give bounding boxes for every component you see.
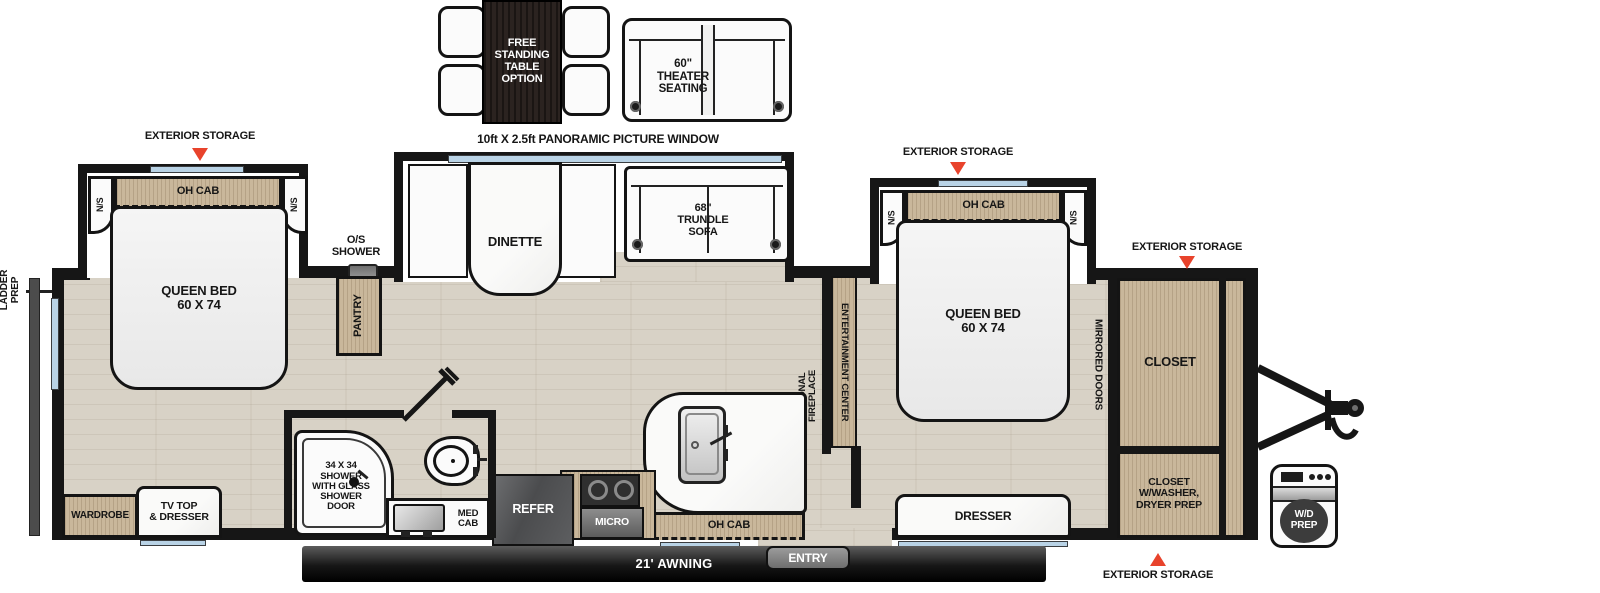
floorplan-canvas: LADDER PREP N/S N/S OH CAB QUEEN BED 60 … xyxy=(0,0,1600,593)
faucet-icon xyxy=(723,425,728,437)
entertainment-center-label: ENTERTAINMENT CENTER xyxy=(833,278,855,446)
dining-chair xyxy=(438,64,486,116)
rear-queen-bed: QUEEN BED 60 X 74 xyxy=(110,206,288,390)
dresser: DRESSER xyxy=(895,494,1071,538)
cupholder-icon xyxy=(632,239,643,250)
stove-cooktop xyxy=(580,474,640,507)
rear-bumper xyxy=(29,278,40,536)
wall-closet-divider-v xyxy=(1219,278,1226,538)
washer-knob xyxy=(1325,474,1331,480)
storage-arrow-icon xyxy=(950,162,966,175)
pantry-label: PANTRY xyxy=(339,279,379,353)
vanity-mirror xyxy=(393,504,445,532)
vanity-sink-knob xyxy=(423,531,432,537)
panoramic-window-label: 10ft X 2.5ft PANORAMIC PICTURE WINDOW xyxy=(398,131,798,147)
wd-prep-label: W/D PREP xyxy=(1280,499,1328,543)
closet-washer-label: CLOSET W/WASHER, DRYER PREP xyxy=(1119,472,1219,516)
vanity-sink-knob xyxy=(401,531,410,537)
exterior-storage-label: EXTERIOR STORAGE xyxy=(878,146,1038,160)
front-overhead-cabinet: OH CAB xyxy=(905,190,1062,222)
dinette-bench xyxy=(408,164,468,278)
nightstand-label: N/S xyxy=(91,179,111,231)
wall-closet xyxy=(1108,278,1117,538)
toilet-tank-tick xyxy=(473,467,478,476)
wall-bedroom-stub xyxy=(851,446,861,508)
toilet-supply-tick xyxy=(477,458,487,461)
exterior-storage-label: EXTERIOR STORAGE xyxy=(1107,241,1267,255)
front-queen-bed: QUEEN BED 60 X 74 xyxy=(896,220,1070,422)
door-swing-icon xyxy=(396,366,460,426)
ladder-prep-label: LADDER PREP xyxy=(0,258,29,322)
rear-window-strip xyxy=(51,298,59,390)
cupholder-icon xyxy=(773,101,784,112)
hitch-icon xyxy=(1258,352,1373,464)
entertainment-center-cabinet: ENTERTAINMENT CENTER xyxy=(831,276,857,448)
refrigerator: REFER xyxy=(492,474,574,546)
closet-label: CLOSET xyxy=(1120,352,1220,372)
exterior-storage-label: EXTERIOR STORAGE xyxy=(120,130,280,144)
sink-drain xyxy=(691,441,699,449)
cupholder-icon xyxy=(770,239,781,250)
stove-burner-icon xyxy=(614,480,634,500)
stove-burner-icon xyxy=(588,480,608,500)
kitchen-sink xyxy=(678,406,726,484)
wardrobe: WARDROBE xyxy=(62,494,138,538)
free-standing-table: FREE STANDING TABLE OPTION xyxy=(482,0,562,124)
rear-slide-window xyxy=(150,166,244,173)
washer-knob xyxy=(1317,474,1323,480)
med-cab-label: MED CAB xyxy=(447,505,489,533)
pantry-cabinet: PANTRY xyxy=(336,276,382,356)
washer-dryer-icon: W/D PREP xyxy=(1270,464,1338,548)
outside-shower-label: O/S SHOWER xyxy=(310,232,402,262)
dining-chair xyxy=(562,6,610,58)
mirrored-doors-label: MIRRORED DOORS xyxy=(1088,300,1106,430)
storage-arrow-icon xyxy=(192,148,208,161)
awning-label: 21' AWNING xyxy=(302,546,1046,582)
theater-seating-label: 60" THEATER SEATING xyxy=(643,53,723,101)
exterior-storage-label: EXTERIOR STORAGE xyxy=(1078,569,1238,583)
dining-chair xyxy=(562,64,610,116)
shower-label: 34 X 34 SHOWER WITH GLASS SHOWER DOOR xyxy=(301,449,381,525)
toilet-tank-tick xyxy=(473,445,478,454)
entry-badge: ENTRY xyxy=(766,546,850,570)
bath-vanity: MED CAB xyxy=(386,498,490,538)
faucet-icon xyxy=(723,449,728,461)
nightstand-label: N/S xyxy=(285,179,305,231)
cupholder-icon xyxy=(630,101,641,112)
washer-knob xyxy=(1309,474,1315,480)
storage-arrow-icon xyxy=(1179,256,1195,269)
kitchen-overhead-cabinet: OH CAB xyxy=(653,512,805,540)
dinette-table: DINETTE xyxy=(468,162,562,296)
front-slide-window xyxy=(938,180,1028,187)
storage-arrow-icon xyxy=(1150,553,1166,566)
tv-top-dresser: TV TOP & DRESSER xyxy=(136,486,222,538)
toilet-drain-dot xyxy=(451,459,455,463)
tv-dresser-window-strip xyxy=(140,540,206,546)
toilet xyxy=(424,436,480,486)
trundle-sofa: 68" TRUNDLE SOFA xyxy=(624,166,790,262)
washer-control-panel xyxy=(1281,472,1303,482)
trundle-sofa-label: 68" TRUNDLE SOFA xyxy=(653,197,753,245)
wall-bath-top xyxy=(284,410,404,418)
shower-stall: 34 X 34 SHOWER WITH GLASS SHOWER DOOR xyxy=(294,430,394,536)
wall-front xyxy=(1246,268,1258,540)
wall-closet-divider-h xyxy=(1117,446,1219,454)
microwave: MICRO xyxy=(580,507,644,539)
awning-bar: 21' AWNING xyxy=(302,546,1046,582)
dining-chair xyxy=(438,6,486,58)
wall-bath-left xyxy=(284,410,292,538)
rear-overhead-cabinet: OH CAB xyxy=(114,176,282,208)
dinette-bench xyxy=(558,164,616,278)
theater-seating: 60" THEATER SEATING xyxy=(622,18,792,122)
